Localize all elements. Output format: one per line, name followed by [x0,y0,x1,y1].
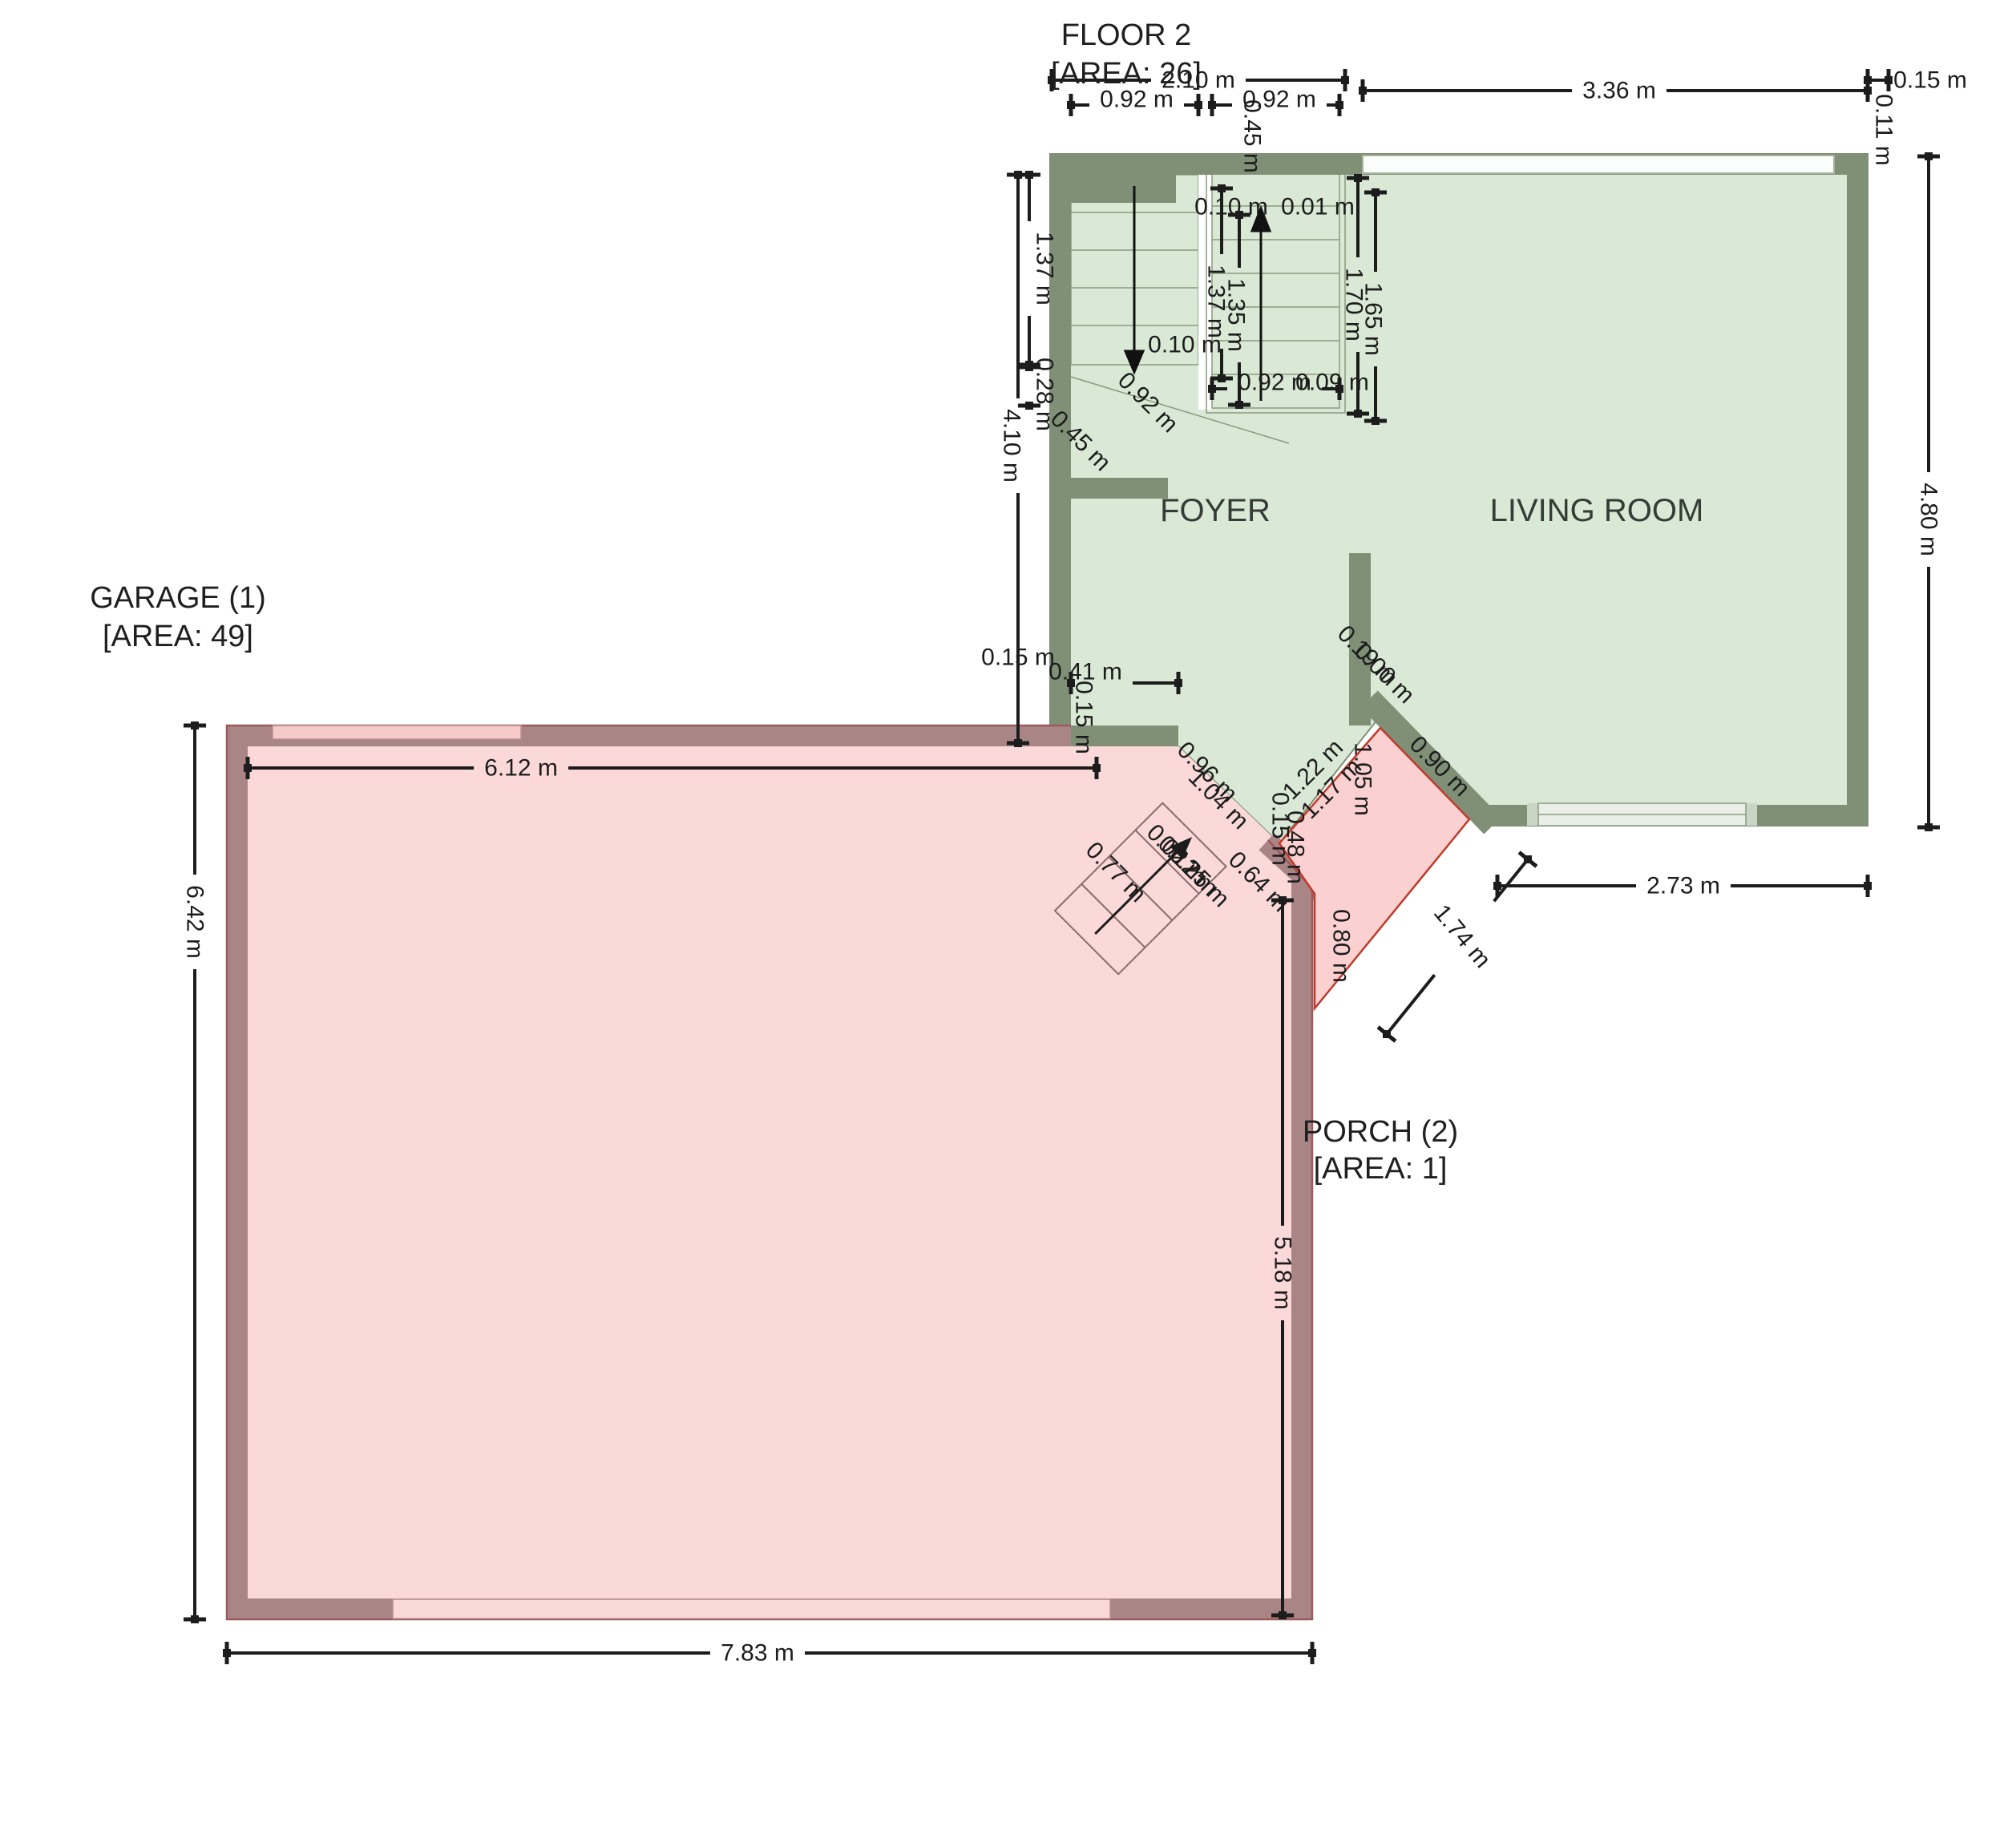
porch-title: PORCH (2) [1303,1115,1458,1149]
floor-plan-svg: 2.10 m0.92 m0.92 m0.45 m3.36 m0.15 m0.11… [0,0,2016,1847]
floor2-area-label: [AREA: 26] [1051,57,1202,91]
dim-end-square [1014,739,1022,747]
dim-end-square [1235,211,1243,219]
floor2-title: FLOOR 2 [1061,18,1192,52]
dim-end-square [1174,679,1182,687]
dimension-label: 4.80 m [1916,483,1942,556]
dimension-label: 4.10 m [999,409,1025,483]
dimension-label: 1.05 m [1350,742,1376,816]
dim-end-square [1208,101,1216,109]
dimension-label: 1.37 m [1032,232,1058,305]
garage-area [227,725,1312,1619]
floor2-right-wall [1847,154,1868,826]
dim-end-square [1372,417,1380,425]
dim-end-square [1493,882,1501,890]
dimension-label: 0.11 m [1871,94,1897,166]
dim-end-square [1208,385,1216,393]
dim-end-square [1925,823,1933,831]
dim-end-square [191,721,199,730]
dimension-label: 6.42 m [182,885,208,959]
room-label-foyer: FOYER [1160,493,1271,528]
dim-end-square [1067,101,1075,109]
garage-door-opening [393,1599,1110,1619]
dim-end-square [223,1649,231,1657]
dimension-label: 0.15 m [1893,67,1967,94]
dim-end-square [1194,101,1202,109]
dim-end-square [1235,401,1243,409]
dim-end-square [1279,1611,1287,1619]
dimension-label: 0.15 m [981,645,1055,671]
dimension-label: 0.15 m [1071,681,1097,754]
dim-end-square [244,764,252,772]
dim-end-square [1885,76,1893,84]
dim-end-square [1359,87,1367,95]
dimension-label: 0.45 m [1239,99,1266,173]
dim-end-square [1524,855,1532,863]
dim-end-square [1372,188,1380,196]
dim-line [1387,975,1435,1034]
dim-end-square [1218,374,1226,382]
dimension-label: 0.48 m [1283,810,1309,884]
dimension-label: 3.36 m [1582,78,1656,104]
dim-end-square [1218,184,1226,192]
living-room-window [1527,803,1757,826]
dim-end-square [1335,101,1343,109]
dim-end-square [1279,896,1287,904]
garage-area-label: [AREA: 49] [103,620,253,653]
dimension-label: 0.01 m [1281,194,1355,220]
dimension-label: 5.18 m [1270,1236,1296,1310]
dimension-label: 0.09 m [1295,370,1369,396]
foyer-interior-wall-stub [1071,478,1168,499]
dim-end-square [1093,764,1101,772]
dimension-label: 6.12 m [484,755,558,782]
garage-unit [227,725,1323,1619]
dim-end-square [1383,1030,1391,1038]
dimension-label: 0.80 m [1328,909,1355,983]
floor2-top-window [1363,156,1834,173]
dim-end-square [1354,174,1362,182]
garage-left-wall [227,725,248,1619]
dim-end-square [1354,410,1362,418]
porch-area-label: [AREA: 1] [1314,1152,1448,1186]
garage-window [273,725,521,739]
floor-plan-page: 2.10 m0.92 m0.92 m0.45 m3.36 m0.15 m0.11… [0,0,2016,1847]
dimension-label: 7.83 m [721,1640,794,1667]
room-label-living-room: LIVING ROOM [1490,493,1704,528]
dim-end-square [1341,76,1349,84]
dimension-label: 0.10 m [1148,332,1222,358]
dim-end-square [1014,171,1022,179]
garage-title: GARAGE (1) [90,581,266,615]
dim-end-square [1864,882,1872,890]
dimension-label: 1.74 m [1428,899,1496,972]
dimension-label: 1.65 m [1360,282,1387,356]
dim-end-square [191,1615,199,1623]
dimension-label: 2.73 m [1646,873,1720,899]
dim-end-square [1308,1649,1316,1657]
dim-end-square [1925,152,1933,160]
dimension-label: 1.35 m [1223,278,1250,352]
dim-end-square [1864,76,1872,84]
